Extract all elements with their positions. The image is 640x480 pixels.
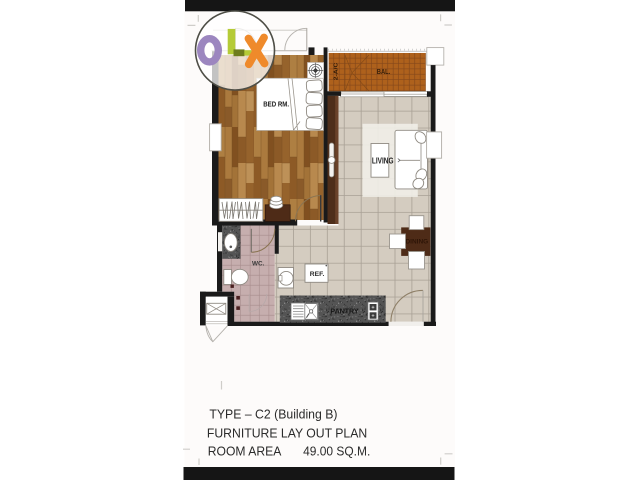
svg-text:PANTRY: PANTRY — [330, 308, 359, 315]
svg-text:49.00 SQ.M.: 49.00 SQ.M. — [303, 444, 370, 459]
svg-text:TYPE – C2 (Building B): TYPE – C2 (Building B) — [209, 407, 337, 422]
svg-text:WC.: WC. — [252, 261, 264, 268]
svg-text:DINING: DINING — [406, 239, 429, 245]
svg-text:2-A/C: 2-A/C — [334, 62, 340, 80]
svg-text:REF.: REF. — [310, 271, 325, 278]
svg-text:ROOM AREA: ROOM AREA — [208, 444, 282, 459]
svg-text:BAL.: BAL. — [377, 69, 391, 76]
svg-text:BED RM.: BED RM. — [263, 99, 289, 108]
svg-text:LIVING: LIVING — [372, 156, 394, 165]
svg-text:FURNITURE LAY OUT PLAN: FURNITURE LAY OUT PLAN — [207, 425, 367, 440]
